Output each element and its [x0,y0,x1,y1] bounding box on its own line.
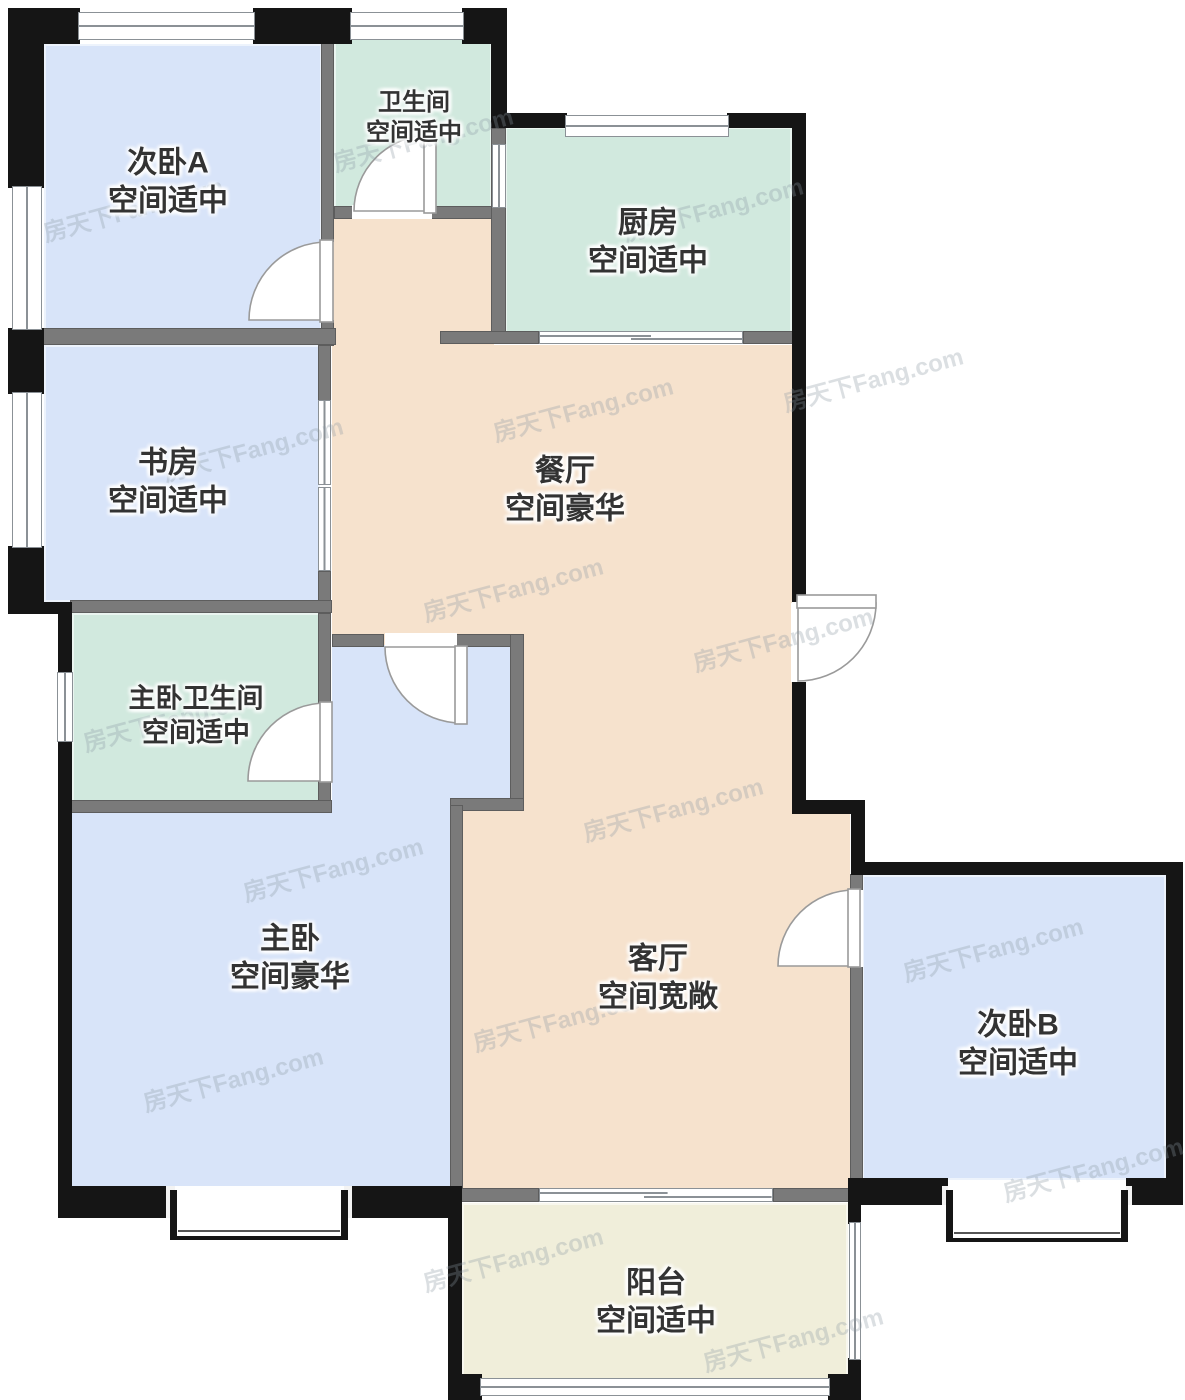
room-quality: 空间豪华 [505,490,625,528]
wall-segment [318,345,331,402]
room-quality: 空间适中 [588,242,708,280]
wall-segment [848,1178,948,1205]
room-label-balcony: 阳台 空间适中 [596,1265,716,1340]
bay-window [170,1190,348,1240]
room-quality: 空间适中 [596,1302,716,1340]
room-name: 书房 [108,445,228,483]
window [12,392,42,548]
window [492,144,506,208]
room-label-master-bathroom: 主卧卫生间 空间适中 [129,682,264,750]
room-name: 阳台 [596,1265,716,1303]
wall-segment [70,600,332,613]
wall-segment [430,206,494,219]
wall-segment [448,1186,462,1400]
room-name: 餐厅 [505,453,625,491]
wall-segment [450,805,463,1197]
wall-segment [773,1188,850,1202]
room-name: 客厅 [598,941,718,979]
window [318,400,331,485]
wall-segment [792,113,806,602]
room-name: 次卧B [958,1007,1078,1045]
wall-segment [850,874,863,891]
wall-segment [253,8,352,44]
wall-segment [318,613,331,705]
wall-segment [42,328,336,345]
wall-segment [8,328,44,394]
wall-segment [60,800,332,813]
room-label-bedroom-a: 次卧A 空间适中 [108,145,228,220]
window [57,672,73,742]
wall-segment [1166,862,1183,1192]
room-name: 卫生间 [366,88,462,118]
wall-segment [792,682,806,806]
watermark: 房天下Fang.com [779,337,967,419]
window [12,186,42,330]
wall-segment [58,614,72,674]
wall-segment [58,740,72,1192]
room-name: 厨房 [588,205,708,243]
room-label-living: 客厅 空间宽敞 [598,941,718,1016]
wall-segment [8,8,44,188]
room-quality: 空间适中 [958,1044,1078,1082]
window [849,1222,861,1360]
wall-segment [727,113,793,128]
window [350,12,464,40]
room-label-bedroom-b: 次卧B 空间适中 [958,1007,1078,1082]
room-label-bathroom: 卫生间 空间适中 [366,88,462,148]
wall-segment [850,966,863,1190]
wall-segment [334,206,354,219]
wall-segment [58,1186,175,1218]
room-quality: 空间适中 [108,182,228,220]
window [565,115,729,137]
door-arc-entrance [798,603,876,681]
room-name: 次卧A [108,145,228,183]
wall-segment [1126,1178,1183,1205]
room-label-study: 书房 空间适中 [108,445,228,520]
room-quality: 空间豪华 [230,958,350,996]
room-name: 主卧 [230,921,350,959]
wall-segment [460,1188,539,1202]
floor-plan: 房天下Fang.com 房天下Fang.com 房天下Fang.com 房天下F… [0,0,1185,1400]
wall-segment [828,1374,861,1400]
room-quality: 空间宽敞 [598,978,718,1016]
room-label-dining: 餐厅 空间豪华 [505,453,625,528]
door-opening-entrance [791,603,807,682]
window [78,12,255,40]
door-leaf-master-bathroom [320,702,332,782]
wall-segment [8,602,72,614]
wall-segment [440,331,539,344]
wall-segment [321,40,334,242]
room-name: 主卧卫生间 [129,682,264,716]
door-leaf-entrance [797,595,876,608]
room-quality: 空间适中 [129,716,264,750]
wall-segment [848,1190,861,1224]
room-quality: 空间适中 [108,482,228,520]
wall-segment [332,634,384,647]
room-label-kitchen: 厨房 空间适中 [588,205,708,280]
bay-window [946,1190,1128,1242]
window [318,487,331,571]
window [480,1378,830,1396]
wall-segment [851,862,1183,875]
wall-segment [510,634,524,810]
sliding-door-kitchen [539,331,743,344]
room-quality: 空间适中 [366,118,462,148]
wall-segment [743,331,794,344]
room-label-master-bedroom: 主卧 空间豪华 [230,921,350,996]
sliding-door-balcony [539,1188,773,1202]
wall-segment [491,113,567,128]
wall-segment [344,1186,460,1218]
